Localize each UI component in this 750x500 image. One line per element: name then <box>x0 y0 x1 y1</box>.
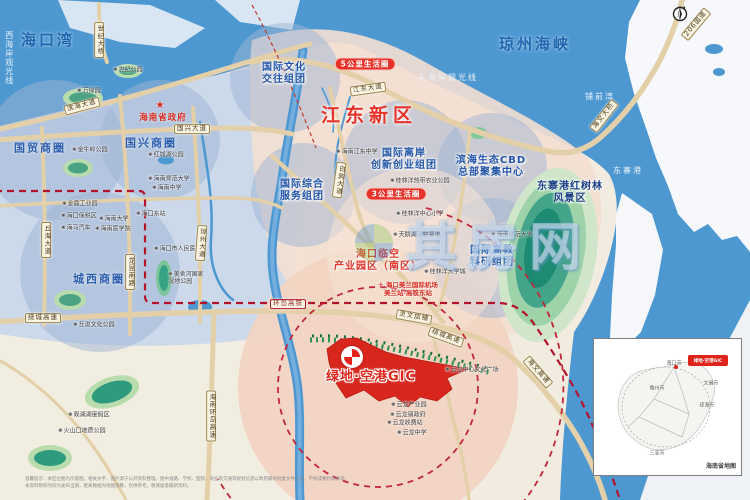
sea-label: 铺前湾 <box>585 92 615 102</box>
road-label: 滨海大道 <box>63 97 100 116</box>
poi-marker-icon: ◉ <box>396 210 400 216</box>
road-label: 绕城高速 <box>25 313 61 323</box>
road-label: 灵文加铺 <box>395 309 432 325</box>
district-label: 海口临空 产业园区（南区） <box>334 249 422 273</box>
poi-label: ◉桂林洋大学城 <box>424 268 465 275</box>
road-label: 海文高速 <box>522 355 553 389</box>
poi-label: ◉云龙收费站 <box>387 419 422 426</box>
road-label: 龙昆南路 <box>125 254 135 290</box>
sea-label: 东寨港 <box>613 166 643 176</box>
road-label: 国兴大道 <box>174 124 210 134</box>
road-label: 绕城高速 <box>427 326 464 348</box>
poi-marker-icon: ◉ <box>424 268 428 274</box>
road-label: 海文大桥 <box>589 99 619 133</box>
poi-marker-icon: ◉ <box>148 175 152 181</box>
poi-marker-icon: ◉ <box>58 427 62 433</box>
inset-city-label: 三亚市 <box>649 450 664 457</box>
poi-marker-icon: ◉ <box>387 419 391 425</box>
star-icon: ★ <box>156 100 165 112</box>
life-circle-badge: 3公里生活圈 <box>366 188 427 201</box>
poi-label: ◉云龙镇政府 <box>390 411 425 418</box>
airport-rail-label: ✈ 海口美兰国际机场 美兰站·高铁东站 <box>378 282 438 298</box>
poi-label: ◉观澜湖度假区 <box>68 411 109 418</box>
poi-marker-icon: ◉ <box>336 148 340 154</box>
district-label: 国际文化 交往组团 <box>262 62 306 86</box>
poi-label: ◉金牛岭公园 <box>72 146 107 153</box>
disclaimer-text: 温馨提示：本区位图为示意图，相关文字、图片源于公开资料整理，图中道路、学校、医院… <box>25 476 545 490</box>
road-label: 海南环岛高速 <box>206 391 216 442</box>
inset-callout: 绿地·空港GIC <box>688 355 728 366</box>
poi-label: ◉红城湖公园 <box>148 151 183 158</box>
poi-marker-icon: ◉ <box>136 210 140 216</box>
sea-label: 海口湾 <box>21 31 75 49</box>
poi-label: ◉海口市人民医院 <box>154 245 201 252</box>
road-label: 江东大道 <box>349 82 386 97</box>
poi-label: ◉美舍河国家 湿地公园 <box>168 271 203 285</box>
poi-label: ◉丘浚文化公园 <box>73 321 114 328</box>
poi-marker-icon: ◉ <box>73 321 77 327</box>
poi-label: ◉桂林洋热带农业公园 <box>390 177 449 184</box>
district-title: 江东新区 <box>321 105 417 128</box>
poi-marker-icon: ◉ <box>393 231 397 237</box>
road-label: 丘海大道 <box>41 222 51 258</box>
district-label: 东寨港红树林 风景区 <box>537 181 603 205</box>
poi-marker-icon: ◉ <box>390 177 394 183</box>
poi-marker-icon: ◉ <box>154 245 158 251</box>
district-label: 国际高教 科研组团 <box>470 245 514 269</box>
poi-label: ◉海口东站 <box>136 210 165 217</box>
poi-marker-icon: ◉ <box>62 200 66 206</box>
poi-label: ◉金鹿工业园 <box>62 200 97 207</box>
life-circle-badge: 5公里生活圈 <box>335 58 396 71</box>
road-label: 琼州大道 <box>195 225 207 262</box>
poi-label: ◉桂林洋中心小学 <box>396 210 443 217</box>
business-circle-label: 国贸商圈 <box>14 141 66 154</box>
government-label: 海南省政府 <box>139 113 187 123</box>
poi-marker-icon: ◉ <box>491 231 495 237</box>
poi-label: ◉海马汽车 <box>61 224 90 231</box>
poi-marker-icon: ◉ <box>168 271 172 277</box>
poi-marker-icon: ◉ <box>99 215 103 221</box>
sea-label: 西海岸观光线 <box>4 31 14 85</box>
poi-label: ◉海口保税区 <box>61 212 96 219</box>
poi-marker-icon: ◉ <box>72 146 76 152</box>
inset-caption: 海南省地图 <box>706 461 736 470</box>
poi-marker-icon: ◉ <box>77 87 81 93</box>
poi-label: ◉海南师范大学 <box>491 231 532 238</box>
inset-city-label: 海口市 <box>666 360 681 367</box>
district-label: 国际综合 服务组团 <box>280 179 324 203</box>
road-label: 世纪大桥 <box>94 22 104 58</box>
sea-label: 东海岸观光线 <box>418 73 478 83</box>
poi-marker-icon: ◉ <box>95 225 99 231</box>
poi-label: ◉云龙中心文化广场 <box>445 366 498 373</box>
road-label: 白驹大道 <box>332 161 347 198</box>
poi-label: ◉云龙中学 <box>397 429 426 436</box>
poi-marker-icon: ◉ <box>445 366 449 372</box>
poi-label: ◉海南江东中学 <box>336 148 377 155</box>
compass-icon: N <box>672 6 692 16</box>
poi-label: ◉海南中学 <box>152 184 181 191</box>
poi-label: ◉天鹅湖动物基地 <box>393 231 440 238</box>
poi-marker-icon: ◉ <box>61 224 65 230</box>
poi-marker-icon: ◉ <box>113 66 117 72</box>
inset-city-label: 琼海市 <box>699 402 714 409</box>
poi-label: ◉云龙产业园 <box>391 401 426 408</box>
poi-marker-icon: ◉ <box>152 184 156 190</box>
poi-marker-icon: ◉ <box>61 212 65 218</box>
poi-label: ◉火山口地质公园 <box>58 427 105 434</box>
poi-marker-icon: ◉ <box>391 401 395 407</box>
rail-label: 环岛高铁 <box>270 299 306 309</box>
business-circle-label: 城西商圈 <box>73 272 125 285</box>
project-name: 绿地·空港GIC <box>326 366 416 385</box>
inset-map: 绿地·空港GIC 海口市儋州市文昌市琼海市三亚市 海南省地图 <box>593 338 742 476</box>
poi-marker-icon: ◉ <box>390 411 394 417</box>
poi-label: ◉海南医学院 <box>95 225 130 232</box>
sea-label: 琼州海峡 <box>499 35 571 53</box>
business-circle-label: 国兴商圈 <box>125 136 177 149</box>
map-container: 西海岸观光线海口湾琼州海峡东海岸观光线铺前湾东寨港江东新区5公里生活圈3公里生活… <box>0 0 750 500</box>
poi-label: ◉海南师范大学 <box>148 175 189 182</box>
poi-marker-icon: ◉ <box>148 151 152 157</box>
inset-city-label: 文昌市 <box>703 380 718 387</box>
inset-city-label: 儋州市 <box>649 385 664 392</box>
poi-label: ◉世纪公园 <box>113 66 142 73</box>
poi-marker-icon: ◉ <box>68 411 72 417</box>
poi-label: ◉海南大学 <box>99 215 128 222</box>
district-label: 滨海生态CBD 总部聚集中心 <box>456 155 526 179</box>
poi-marker-icon: ◉ <box>397 429 401 435</box>
poi-label: ◉万绿园 <box>77 87 100 94</box>
district-label: 国际离岸 创新创业组团 <box>371 148 437 172</box>
